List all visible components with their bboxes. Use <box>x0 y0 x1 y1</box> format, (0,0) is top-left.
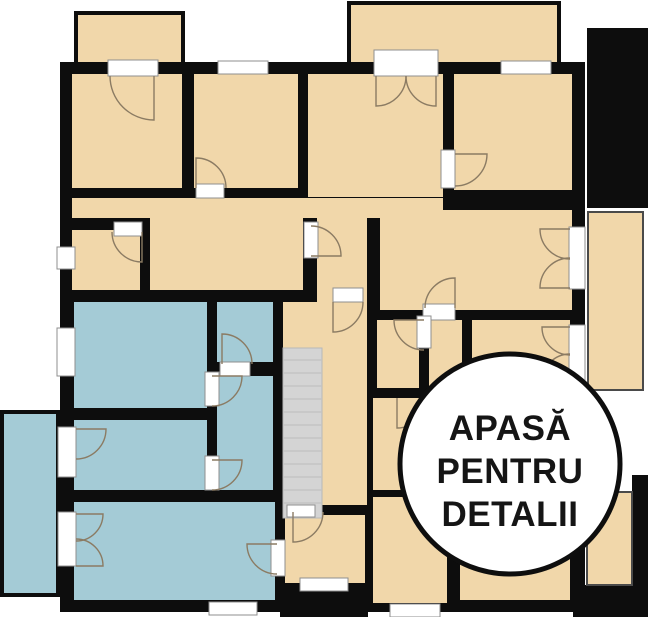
window-top-1 <box>218 61 268 74</box>
room-top-middle <box>194 74 298 188</box>
balcony-left <box>2 412 58 595</box>
door-opening-bath-small <box>417 316 431 348</box>
door-opening-bathroom <box>114 222 142 236</box>
bathroom-small-left <box>377 320 419 388</box>
rooms-cool <box>74 302 275 600</box>
window-bottom-2 <box>390 604 440 617</box>
window-left-balcony-door <box>58 427 76 477</box>
room-top-right <box>454 74 572 190</box>
door-opening-blue-wc <box>220 362 250 376</box>
door-opening-bottom-room <box>287 505 315 517</box>
room-top-left <box>72 74 182 188</box>
floor-plan[interactable]: APASĂ PENTRU DETALII <box>0 0 648 617</box>
cta-line-3[interactable]: DETALII <box>441 495 578 534</box>
staircase <box>283 348 322 518</box>
floor-plan-svg[interactable]: APASĂ PENTRU DETALII <box>0 0 648 617</box>
window-balcony-door-top-left <box>108 60 158 76</box>
window-left-2 <box>57 328 75 376</box>
cta-line-2[interactable]: PENTRU <box>437 452 584 491</box>
blue-hall <box>217 376 273 490</box>
door-opening-room-top-right <box>441 150 455 188</box>
blue-room-top <box>74 302 207 408</box>
window-left-french <box>58 512 76 566</box>
blue-wc <box>217 302 273 362</box>
window-bottom-1 <box>209 602 257 615</box>
annex-top-right <box>587 28 648 208</box>
balcony-right <box>588 212 643 390</box>
annex-right-strip <box>632 475 648 587</box>
door-opening-blue-top <box>205 372 219 406</box>
door-opening-room-top-middle <box>196 184 224 198</box>
window-right-french-1 <box>569 227 585 289</box>
living-room <box>380 210 572 310</box>
window-bottom-3 <box>300 578 348 591</box>
door-opening-blue-middle <box>205 456 219 490</box>
blue-room-middle <box>74 420 207 490</box>
window-french-top-balcony <box>374 50 438 76</box>
door-opening-corridor <box>333 288 363 302</box>
blue-room-large <box>74 502 275 600</box>
cta-line-1[interactable]: APASĂ <box>449 409 571 448</box>
hall-lower-left <box>150 218 303 290</box>
door-opening-blue-large <box>271 540 285 576</box>
detail-button[interactable]: APASĂ PENTRU DETALII <box>400 354 620 574</box>
window-top-2 <box>501 61 551 74</box>
room-bottom-center-left <box>285 515 365 583</box>
door-opening-hall <box>304 222 318 258</box>
window-left-1 <box>57 247 75 269</box>
balcony-top-left <box>76 13 183 64</box>
